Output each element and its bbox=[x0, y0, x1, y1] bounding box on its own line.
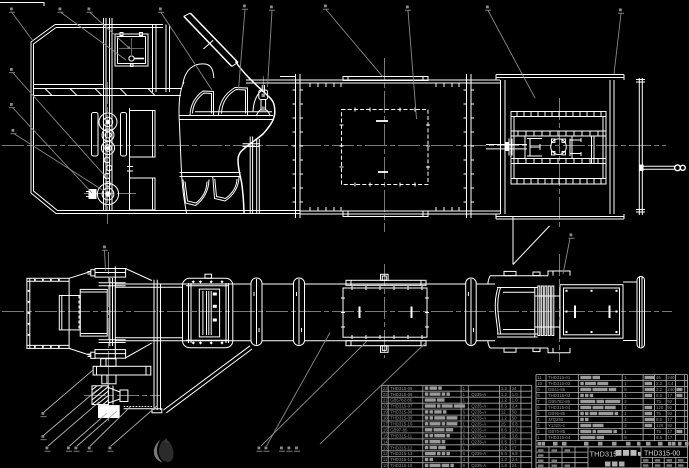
svg-text:THD315: THD315 bbox=[590, 450, 618, 459]
svg-text:THD315-00: THD315-00 bbox=[644, 451, 680, 458]
svg-text:6.8: 6.8 bbox=[512, 451, 519, 456]
svg-text:1.2: 1.2 bbox=[501, 398, 508, 403]
svg-text:Q235-A: Q235-A bbox=[471, 392, 486, 397]
svg-text:92: 92 bbox=[667, 423, 672, 428]
svg-text:17: 17 bbox=[512, 445, 517, 450]
svg-text:24: 24 bbox=[512, 386, 517, 391]
svg-text:92: 92 bbox=[667, 411, 672, 416]
svg-text:Q235-A: Q235-A bbox=[471, 439, 486, 444]
svg-text:75: 75 bbox=[656, 411, 661, 416]
svg-text:2.2: 2.2 bbox=[656, 381, 663, 386]
svg-text:THD315-15: THD315-15 bbox=[390, 463, 413, 468]
svg-text:14: 14 bbox=[383, 439, 388, 444]
svg-text:240: 240 bbox=[667, 375, 675, 380]
svg-text:120: 120 bbox=[656, 423, 664, 428]
svg-text:24: 24 bbox=[512, 463, 517, 468]
svg-text:1.0: 1.0 bbox=[512, 392, 519, 397]
svg-text:THD315-13: THD315-13 bbox=[390, 451, 413, 456]
svg-text:1.2: 1.2 bbox=[501, 386, 508, 391]
svg-text:THD315-11: THD315-11 bbox=[390, 433, 413, 438]
svg-text:THD315-04: THD315-04 bbox=[548, 405, 571, 410]
svg-text:17: 17 bbox=[512, 439, 517, 444]
svg-text:12: 12 bbox=[501, 410, 506, 415]
svg-text:THD315-14: THD315-14 bbox=[390, 457, 413, 462]
svg-text:6.8: 6.8 bbox=[512, 422, 519, 427]
svg-text:92: 92 bbox=[667, 405, 672, 410]
svg-text:THD315-09: THD315-09 bbox=[390, 416, 413, 421]
svg-text:Q235-A: Q235-A bbox=[471, 433, 486, 438]
svg-text:1.8: 1.8 bbox=[501, 463, 508, 468]
svg-text:0.5: 0.5 bbox=[501, 404, 508, 409]
svg-text:1.2: 1.2 bbox=[501, 445, 508, 450]
svg-text:2.4: 2.4 bbox=[512, 457, 519, 462]
svg-text:0.5: 0.5 bbox=[501, 439, 508, 444]
svg-text:GB41-86: GB41-86 bbox=[548, 387, 566, 392]
svg-text:THD315-07: THD315-07 bbox=[390, 404, 413, 409]
svg-text:120: 120 bbox=[656, 405, 664, 410]
svg-text:THD315-05: THD315-05 bbox=[390, 386, 413, 391]
svg-text:2.2: 2.2 bbox=[656, 387, 663, 392]
svg-text:15: 15 bbox=[383, 433, 388, 438]
svg-text:THD315-08: THD315-08 bbox=[390, 410, 413, 415]
svg-text:12: 12 bbox=[383, 451, 388, 456]
svg-text:17: 17 bbox=[667, 417, 672, 422]
svg-text:Q235-A: Q235-A bbox=[471, 451, 486, 456]
svg-text:46: 46 bbox=[656, 375, 661, 380]
svg-text:3.6: 3.6 bbox=[512, 433, 519, 438]
svg-text:17: 17 bbox=[667, 435, 672, 440]
svg-text:10: 10 bbox=[383, 463, 388, 468]
svg-text:25: 25 bbox=[501, 422, 506, 427]
svg-text:240: 240 bbox=[667, 387, 675, 392]
svg-text:75: 75 bbox=[656, 429, 661, 434]
svg-text:50: 50 bbox=[512, 416, 517, 421]
svg-text:GB5782-86: GB5782-86 bbox=[390, 398, 413, 403]
svg-text:17: 17 bbox=[667, 429, 672, 434]
svg-text:Q235-A: Q235-A bbox=[471, 404, 486, 409]
svg-text:Q235-A: Q235-A bbox=[471, 463, 486, 468]
svg-text:THD315-04: THD315-04 bbox=[548, 435, 571, 440]
svg-text:8.5: 8.5 bbox=[656, 417, 663, 422]
svg-text:18: 18 bbox=[383, 416, 388, 421]
svg-text:22: 22 bbox=[383, 392, 388, 397]
svg-text:17: 17 bbox=[383, 422, 388, 427]
svg-text:21: 21 bbox=[383, 398, 388, 403]
svg-text:Q235-A: Q235-A bbox=[471, 422, 486, 427]
svg-text:THD315-01: THD315-01 bbox=[548, 375, 571, 380]
svg-text:1.2: 1.2 bbox=[501, 416, 508, 421]
svg-text:THD315-02: THD315-02 bbox=[548, 381, 571, 386]
svg-text:4.4: 4.4 bbox=[667, 381, 674, 386]
svg-text:11: 11 bbox=[383, 457, 388, 462]
svg-text:8.5: 8.5 bbox=[656, 393, 663, 398]
svg-text:THD315-12: THD315-12 bbox=[390, 445, 413, 450]
svg-text:GB95-85: GB95-85 bbox=[548, 411, 566, 416]
svg-text:Y132S-4: Y132S-4 bbox=[548, 423, 565, 428]
svg-text:GB97-85: GB97-85 bbox=[390, 427, 408, 432]
svg-text:12: 12 bbox=[501, 433, 506, 438]
svg-text:11: 11 bbox=[537, 375, 542, 380]
svg-text:16: 16 bbox=[383, 427, 388, 432]
svg-text:1.2: 1.2 bbox=[501, 457, 508, 462]
svg-text:8.5: 8.5 bbox=[656, 435, 663, 440]
svg-text:THD315-03: THD315-03 bbox=[548, 393, 571, 398]
svg-text:1.2: 1.2 bbox=[501, 392, 508, 397]
svg-text:JZQ250: JZQ250 bbox=[548, 417, 564, 422]
svg-text:75: 75 bbox=[656, 399, 661, 404]
svg-text:19: 19 bbox=[383, 410, 388, 415]
svg-text:8.6: 8.6 bbox=[501, 427, 508, 432]
svg-text:Q235-A: Q235-A bbox=[471, 416, 486, 421]
svg-text:THD315-10: THD315-10 bbox=[390, 422, 413, 427]
svg-text:GB5782-86: GB5782-86 bbox=[548, 399, 571, 404]
svg-text:20: 20 bbox=[383, 404, 388, 409]
svg-text:10: 10 bbox=[537, 381, 542, 386]
svg-text:GB70-85: GB70-85 bbox=[548, 429, 566, 434]
svg-text:13: 13 bbox=[383, 445, 388, 450]
svg-text:92: 92 bbox=[667, 399, 672, 404]
svg-text:17: 17 bbox=[667, 393, 672, 398]
svg-text:Q235-A: Q235-A bbox=[471, 427, 486, 432]
svg-text:Q235-A: Q235-A bbox=[471, 410, 486, 415]
svg-text:1.0: 1.0 bbox=[512, 398, 519, 403]
svg-text:8.6: 8.6 bbox=[501, 451, 508, 456]
svg-text:2.4: 2.4 bbox=[512, 404, 519, 409]
svg-text:THD315-06: THD315-06 bbox=[390, 392, 413, 397]
svg-text:50: 50 bbox=[512, 410, 517, 415]
svg-text:1.0: 1.0 bbox=[512, 427, 519, 432]
svg-text:23: 23 bbox=[383, 386, 388, 391]
